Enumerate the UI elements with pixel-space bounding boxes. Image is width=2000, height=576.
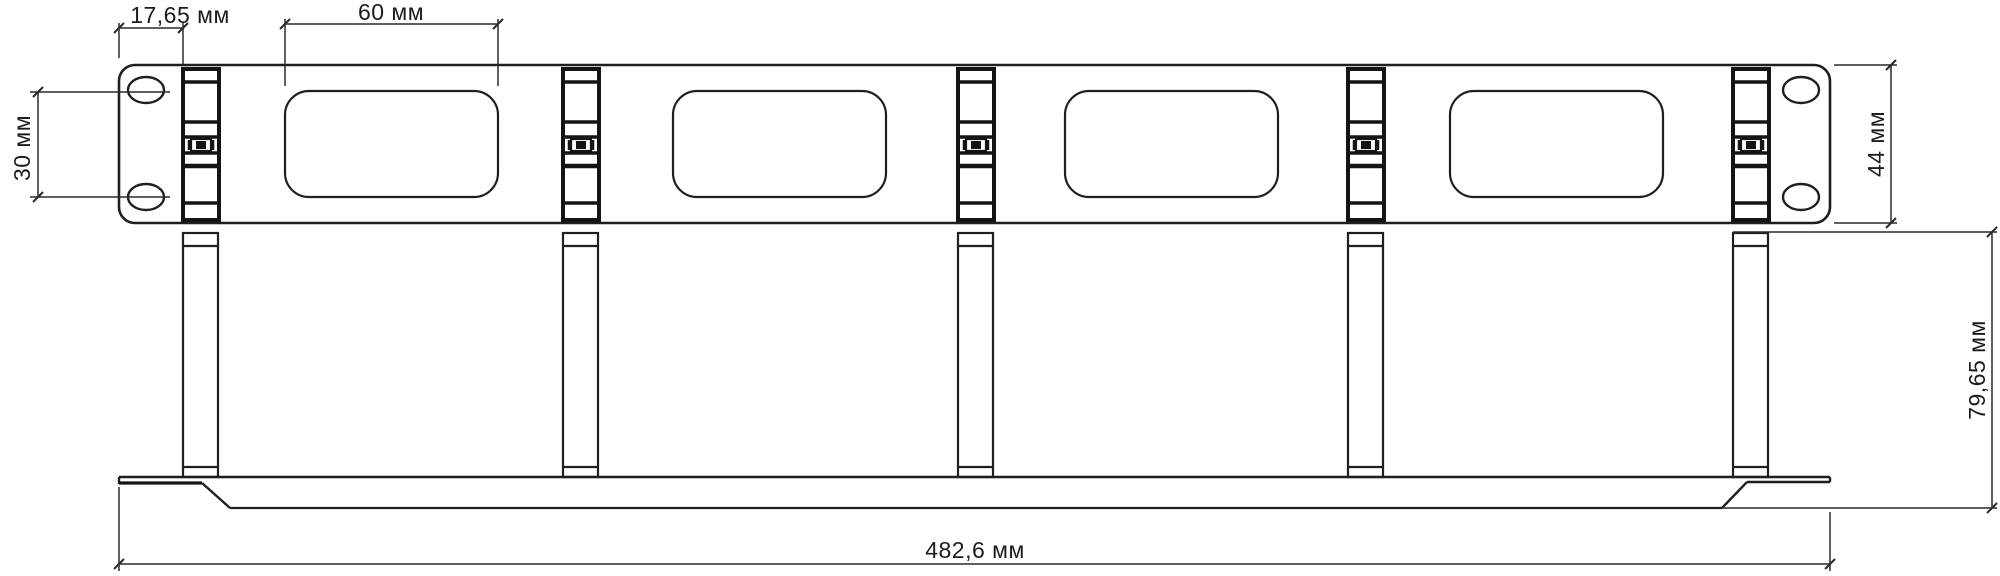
dimension-ring-depth: 79,65 мм [1722, 227, 1997, 513]
ring-bracket-1 [183, 69, 219, 220]
mounting-hole-bottom-right [1783, 184, 1819, 210]
mounting-hole-top-right [1783, 77, 1819, 103]
cable-slot-3 [1065, 91, 1278, 197]
dimension-ear-offset: 17,65 мм [114, 2, 230, 64]
mounting-hole-top-left [128, 77, 164, 103]
ring-post-2 [563, 233, 598, 477]
ring-bracket-4 [1348, 69, 1384, 220]
dimension-label-ear-offset: 17,65 мм [130, 2, 230, 28]
ring-bracket-5 [1733, 69, 1769, 220]
ring-post-4 [1348, 233, 1383, 477]
dimension-total-width: 482,6 мм [114, 487, 1835, 571]
ring-bracket-2 [563, 69, 599, 220]
dimension-panel-height: 44 мм [1834, 60, 1897, 228]
front-view [119, 65, 1830, 223]
ring-post-1 [183, 233, 218, 477]
cable-slot-4 [1450, 91, 1663, 197]
dimension-label-panel-height: 44 мм [1863, 111, 1889, 177]
technical-drawing-canvas: 17,65 мм 60 мм 30 мм 44 мм 482,6 мм [0, 0, 2000, 576]
support-bar [119, 477, 1830, 508]
dimension-label-total-width: 482,6 мм [925, 537, 1025, 563]
ring-post-5 [1733, 233, 1768, 477]
ring-bracket-3 [958, 69, 994, 220]
dimension-label-hole-spacing: 30 мм [9, 115, 35, 181]
dimension-label-slot-width: 60 мм [358, 0, 424, 25]
dimension-label-ring-depth: 79,65 мм [1964, 320, 1990, 420]
cable-organizer-drawing: 17,65 мм 60 мм 30 мм 44 мм 482,6 мм [0, 0, 2000, 576]
cable-slot-2 [673, 91, 886, 197]
bottom-view [119, 233, 1830, 508]
dimension-slot-width: 60 мм [280, 0, 503, 86]
cable-slot-1 [285, 91, 498, 197]
ring-post-3 [958, 233, 993, 477]
